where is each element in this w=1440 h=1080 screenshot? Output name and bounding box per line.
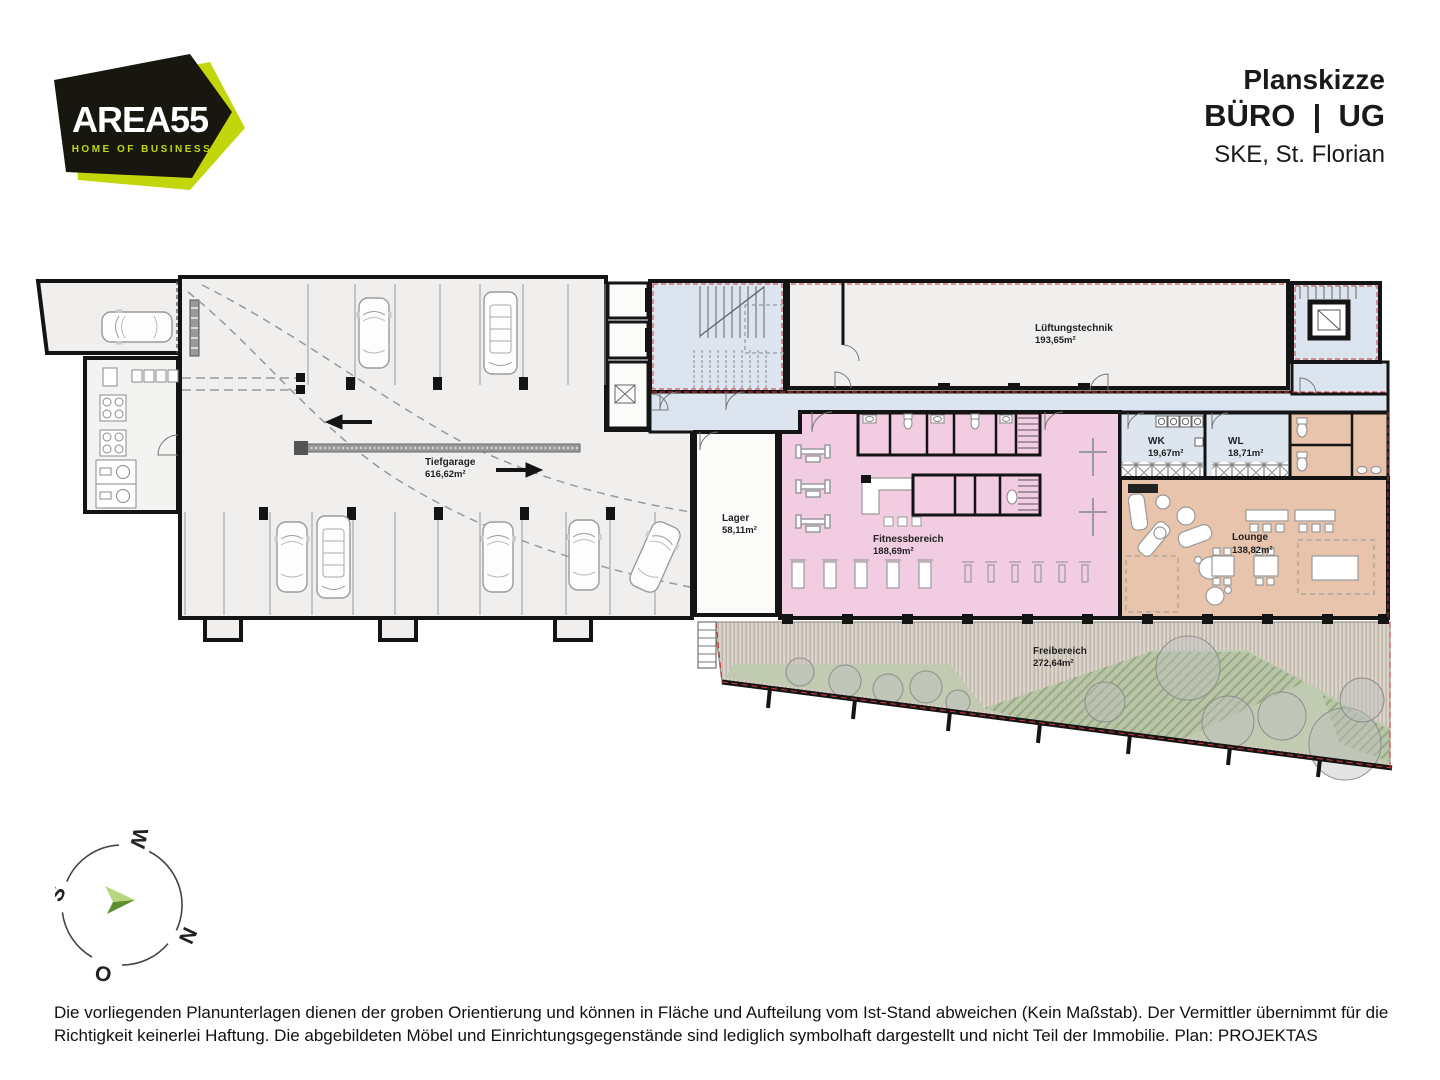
car-parked	[275, 522, 310, 592]
lager-room: Lager 58,11m²	[695, 432, 777, 615]
gym-benches	[796, 445, 830, 532]
page-title: Planskizze	[1204, 62, 1385, 97]
tiefgarage-room: Tiefgarage 616,62m²	[38, 277, 692, 640]
fitnessbereich-area: 188,69m²	[873, 546, 914, 557]
tv	[1128, 484, 1158, 493]
lounge-label: Lounge	[1232, 532, 1269, 543]
logo-brand-text: AREA55	[72, 99, 209, 140]
title-block: Planskizze BÜRO | UG SKE, St. Florian	[1204, 62, 1385, 170]
compass-s: S	[55, 883, 71, 905]
floor-plan: Freibereich 272,64m²	[30, 255, 1400, 790]
fitnessbereich-label: Fitnessbereich	[873, 534, 944, 545]
wk-area: 19,67m²	[1148, 448, 1183, 459]
stairwell-right	[1292, 283, 1380, 362]
disclaimer-text: Die vorliegenden Planunterlagen dienen d…	[54, 1002, 1394, 1047]
tiefgarage-area: 616,62m²	[425, 469, 466, 480]
lueftungstechnik-label: Lüftungstechnik	[1035, 323, 1113, 334]
fitnessbereich-room: Fitnessbereich 188,69m²	[780, 412, 1120, 618]
van-parked	[484, 292, 517, 374]
wl-room: WL 18,71m²	[1205, 413, 1290, 478]
freibereich-terrace: Freibereich 272,64m²	[698, 622, 1392, 780]
compass-rose: W S N O	[55, 818, 235, 998]
logo-tagline-text: HOME OF BUSINESS	[72, 144, 213, 155]
van-parked	[317, 516, 350, 598]
compass-o: O	[93, 962, 114, 988]
compass-w: W	[125, 826, 152, 850]
compass-needle	[105, 886, 135, 914]
page-location: SKE, St. Florian	[1204, 140, 1385, 170]
page-subtitle: BÜRO | UG	[1204, 97, 1385, 136]
tiefgarage-label: Tiefgarage	[425, 457, 476, 468]
lounge-area: 138,82m²	[1232, 545, 1273, 556]
wk-lockers	[1122, 462, 1203, 477]
wk-label: WK	[1148, 436, 1165, 447]
lueftungstechnik-area: 193,65m²	[1035, 335, 1076, 346]
area55-logo: AREA55 HOME OF BUSINESS	[38, 48, 258, 198]
wl-area: 18,71m²	[1228, 448, 1263, 459]
lounge-room: Lounge 138,82m²	[1120, 478, 1388, 618]
car-entry	[102, 310, 172, 345]
lager-area: 58,11m²	[722, 525, 757, 536]
wl-label: WL	[1228, 436, 1244, 447]
planskizze-page: { "header": { "logo": { "brand": "AREA55…	[0, 0, 1440, 1080]
terrace-stair	[698, 622, 716, 668]
freibereich-label: Freibereich	[1033, 646, 1087, 657]
car-parked	[481, 522, 516, 592]
car-parked	[357, 298, 392, 368]
wc-rooms	[1290, 413, 1388, 478]
wl-lockers	[1212, 462, 1288, 477]
car-parked	[567, 520, 602, 590]
wk-room: WK 19,67m²	[1120, 413, 1205, 478]
lager-label: Lager	[722, 513, 749, 524]
lueftungstechnik-room: Lüftungstechnik 193,65m²	[788, 281, 1288, 389]
freibereich-area: 272,64m²	[1033, 658, 1074, 669]
technic-room	[85, 358, 178, 512]
